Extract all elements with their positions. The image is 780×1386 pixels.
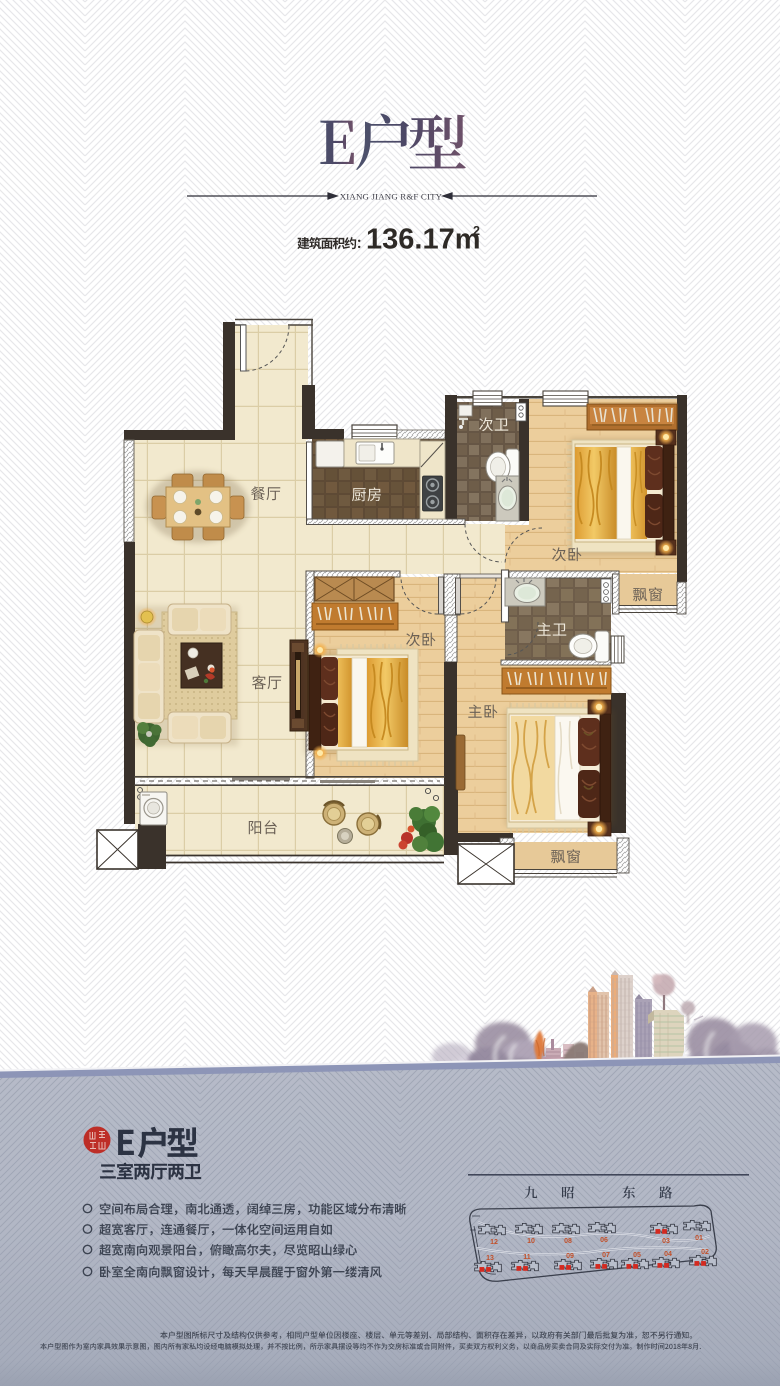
svg-text:136.17m: 136.17m bbox=[366, 224, 481, 256]
svg-text:01: 01 bbox=[695, 1235, 703, 1242]
svg-text:XIANG JIANG R&F CITY: XIANG JIANG R&F CITY bbox=[340, 192, 443, 202]
svg-text:03: 03 bbox=[662, 1238, 670, 1245]
svg-text:09: 09 bbox=[566, 1253, 574, 1260]
svg-text:04: 04 bbox=[664, 1251, 672, 1258]
svg-text:07: 07 bbox=[602, 1252, 610, 1259]
svg-text:02: 02 bbox=[701, 1249, 709, 1256]
svg-text:12: 12 bbox=[490, 1239, 498, 1246]
svg-text:06: 06 bbox=[600, 1237, 608, 1244]
svg-text:13: 13 bbox=[486, 1255, 494, 1262]
svg-text:11: 11 bbox=[523, 1254, 531, 1261]
svg-text:08: 08 bbox=[564, 1238, 572, 1245]
svg-text:2: 2 bbox=[473, 224, 480, 238]
svg-text:05: 05 bbox=[633, 1252, 641, 1259]
svg-text:10: 10 bbox=[527, 1238, 535, 1245]
